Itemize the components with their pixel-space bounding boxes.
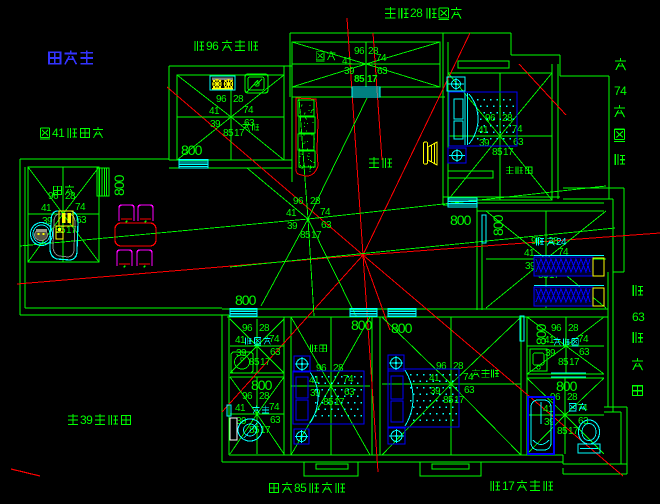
svg-text:39: 39 (210, 119, 221, 130)
svg-text:63: 63 (344, 387, 355, 398)
svg-text:39: 39 (236, 348, 247, 359)
svg-text:800: 800 (556, 378, 578, 394)
svg-text:28: 28 (410, 6, 423, 20)
svg-text:63: 63 (321, 220, 332, 231)
svg-text:800: 800 (391, 320, 413, 336)
svg-text:85: 85 (558, 357, 569, 368)
svg-text:63: 63 (377, 66, 388, 77)
svg-text:17: 17 (260, 357, 271, 368)
svg-text:24: 24 (556, 237, 567, 248)
svg-text:41: 41 (235, 335, 246, 346)
svg-text:41: 41 (235, 403, 246, 414)
svg-text:74: 74 (376, 53, 387, 64)
svg-text:17: 17 (503, 147, 514, 158)
svg-text:63: 63 (270, 347, 281, 358)
svg-text:28: 28 (310, 196, 321, 207)
svg-text:63: 63 (632, 310, 645, 324)
svg-text:96: 96 (293, 196, 304, 207)
svg-text:39: 39 (287, 221, 298, 232)
svg-text:74: 74 (614, 84, 627, 98)
svg-text:800: 800 (111, 174, 127, 196)
svg-text:39: 39 (479, 138, 490, 149)
svg-text:96: 96 (216, 94, 227, 105)
svg-text:74: 74 (269, 402, 280, 413)
svg-text:74: 74 (269, 334, 280, 345)
svg-text:85: 85 (492, 147, 503, 158)
svg-text:800: 800 (533, 323, 549, 345)
svg-text:39: 39 (430, 386, 441, 397)
svg-text:85: 85 (443, 395, 454, 406)
svg-text:28: 28 (333, 363, 344, 374)
svg-text:41: 41 (52, 126, 65, 140)
svg-text:63: 63 (464, 385, 475, 396)
svg-text:41: 41 (41, 203, 52, 214)
svg-text:800: 800 (351, 317, 373, 333)
svg-text:17: 17 (502, 479, 515, 493)
svg-text:800: 800 (490, 214, 506, 236)
svg-text:800: 800 (251, 377, 273, 393)
svg-text:41: 41 (286, 208, 297, 219)
svg-text:63: 63 (579, 347, 590, 358)
svg-text:800: 800 (235, 292, 257, 308)
svg-text:96: 96 (316, 363, 327, 374)
svg-text:17: 17 (367, 74, 378, 85)
svg-text:85: 85 (354, 74, 365, 85)
svg-text:85: 85 (294, 481, 307, 495)
svg-text:74: 74 (320, 207, 331, 218)
svg-text:39: 39 (80, 413, 93, 427)
svg-text:28: 28 (259, 323, 270, 334)
svg-text:41: 41 (209, 106, 220, 117)
svg-text:17: 17 (311, 230, 322, 241)
svg-text:96: 96 (436, 361, 447, 372)
svg-text:74: 74 (578, 334, 589, 345)
svg-text:800: 800 (450, 212, 472, 228)
svg-text:96: 96 (551, 323, 562, 334)
svg-text:800: 800 (181, 142, 203, 158)
svg-text:74: 74 (243, 105, 254, 116)
svg-text:85: 85 (300, 230, 311, 241)
svg-text:85: 85 (223, 128, 234, 139)
svg-text:17: 17 (568, 426, 579, 437)
svg-text:74: 74 (75, 202, 86, 213)
svg-text:28: 28 (233, 94, 244, 105)
svg-text:85: 85 (249, 357, 260, 368)
svg-text:63: 63 (244, 118, 255, 129)
svg-text:41: 41 (543, 404, 554, 415)
svg-text:96: 96 (242, 323, 253, 334)
svg-text:74: 74 (558, 247, 569, 258)
svg-text:28: 28 (568, 323, 579, 334)
svg-text:96: 96 (206, 39, 219, 53)
svg-text:85: 85 (557, 426, 568, 437)
svg-text:41: 41 (478, 125, 489, 136)
svg-text:41: 41 (524, 248, 535, 259)
svg-text:17: 17 (569, 357, 580, 368)
svg-text:63: 63 (270, 415, 281, 426)
svg-text:96: 96 (354, 46, 365, 57)
